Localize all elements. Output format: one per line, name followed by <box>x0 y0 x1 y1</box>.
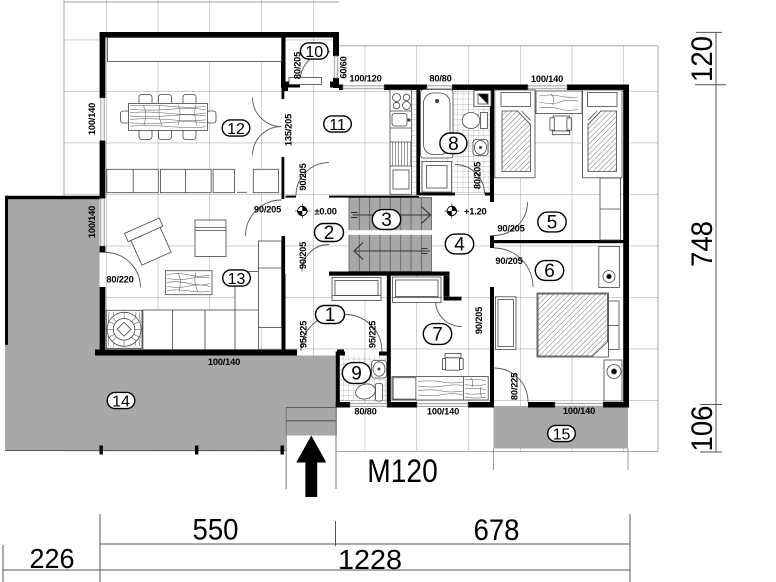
svg-text:1228: 1228 <box>338 544 402 575</box>
svg-text:80/220: 80/220 <box>106 275 133 285</box>
svg-text:9: 9 <box>351 364 362 385</box>
svg-text:550: 550 <box>193 514 239 547</box>
svg-text:106: 106 <box>686 406 719 452</box>
svg-text:3: 3 <box>381 210 392 231</box>
svg-text:6: 6 <box>544 261 555 282</box>
svg-text:8: 8 <box>448 134 459 155</box>
svg-text:80/205: 80/205 <box>293 52 303 79</box>
svg-text:90/205: 90/205 <box>298 163 308 190</box>
svg-text:60/60: 60/60 <box>338 56 348 78</box>
svg-text:2: 2 <box>324 223 335 244</box>
svg-text:11: 11 <box>329 117 346 134</box>
svg-text:100/140: 100/140 <box>208 357 240 367</box>
svg-text:4: 4 <box>454 235 465 256</box>
svg-text:+1.20: +1.20 <box>464 207 487 217</box>
svg-text:80/80: 80/80 <box>354 406 376 416</box>
svg-text:90/205: 90/205 <box>298 242 308 269</box>
svg-text:95/225: 95/225 <box>299 321 309 348</box>
svg-text:678: 678 <box>474 514 520 547</box>
svg-text:748: 748 <box>686 221 719 267</box>
svg-text:135/205: 135/205 <box>284 114 294 146</box>
svg-text:100/140: 100/140 <box>87 206 97 238</box>
svg-text:5: 5 <box>547 213 558 234</box>
svg-text:90/205: 90/205 <box>497 224 524 234</box>
svg-text:1: 1 <box>325 305 336 326</box>
svg-text:90/205: 90/205 <box>495 256 522 266</box>
svg-text:13: 13 <box>228 271 246 288</box>
svg-text:10: 10 <box>305 44 323 61</box>
svg-text:15: 15 <box>553 426 571 443</box>
svg-text:100/140: 100/140 <box>427 406 459 416</box>
svg-text:90/205: 90/205 <box>474 307 484 334</box>
svg-text:14: 14 <box>112 393 130 410</box>
svg-text:100/140: 100/140 <box>531 74 563 84</box>
svg-text:226: 226 <box>30 543 75 574</box>
svg-text:120: 120 <box>686 36 719 82</box>
svg-text:M120: M120 <box>367 453 438 489</box>
svg-text:100/120: 100/120 <box>349 74 381 84</box>
svg-text:90/205: 90/205 <box>254 205 281 215</box>
svg-text:80/225: 80/225 <box>510 373 520 400</box>
svg-text:80/205: 80/205 <box>472 162 482 189</box>
svg-text:12: 12 <box>227 121 245 138</box>
svg-text:±0.00: ±0.00 <box>315 207 337 217</box>
svg-text:100/140: 100/140 <box>563 406 595 416</box>
svg-text:80/80: 80/80 <box>429 74 451 84</box>
svg-text:95/225: 95/225 <box>368 321 378 348</box>
svg-text:7: 7 <box>432 325 443 346</box>
svg-text:100/140: 100/140 <box>87 103 97 135</box>
